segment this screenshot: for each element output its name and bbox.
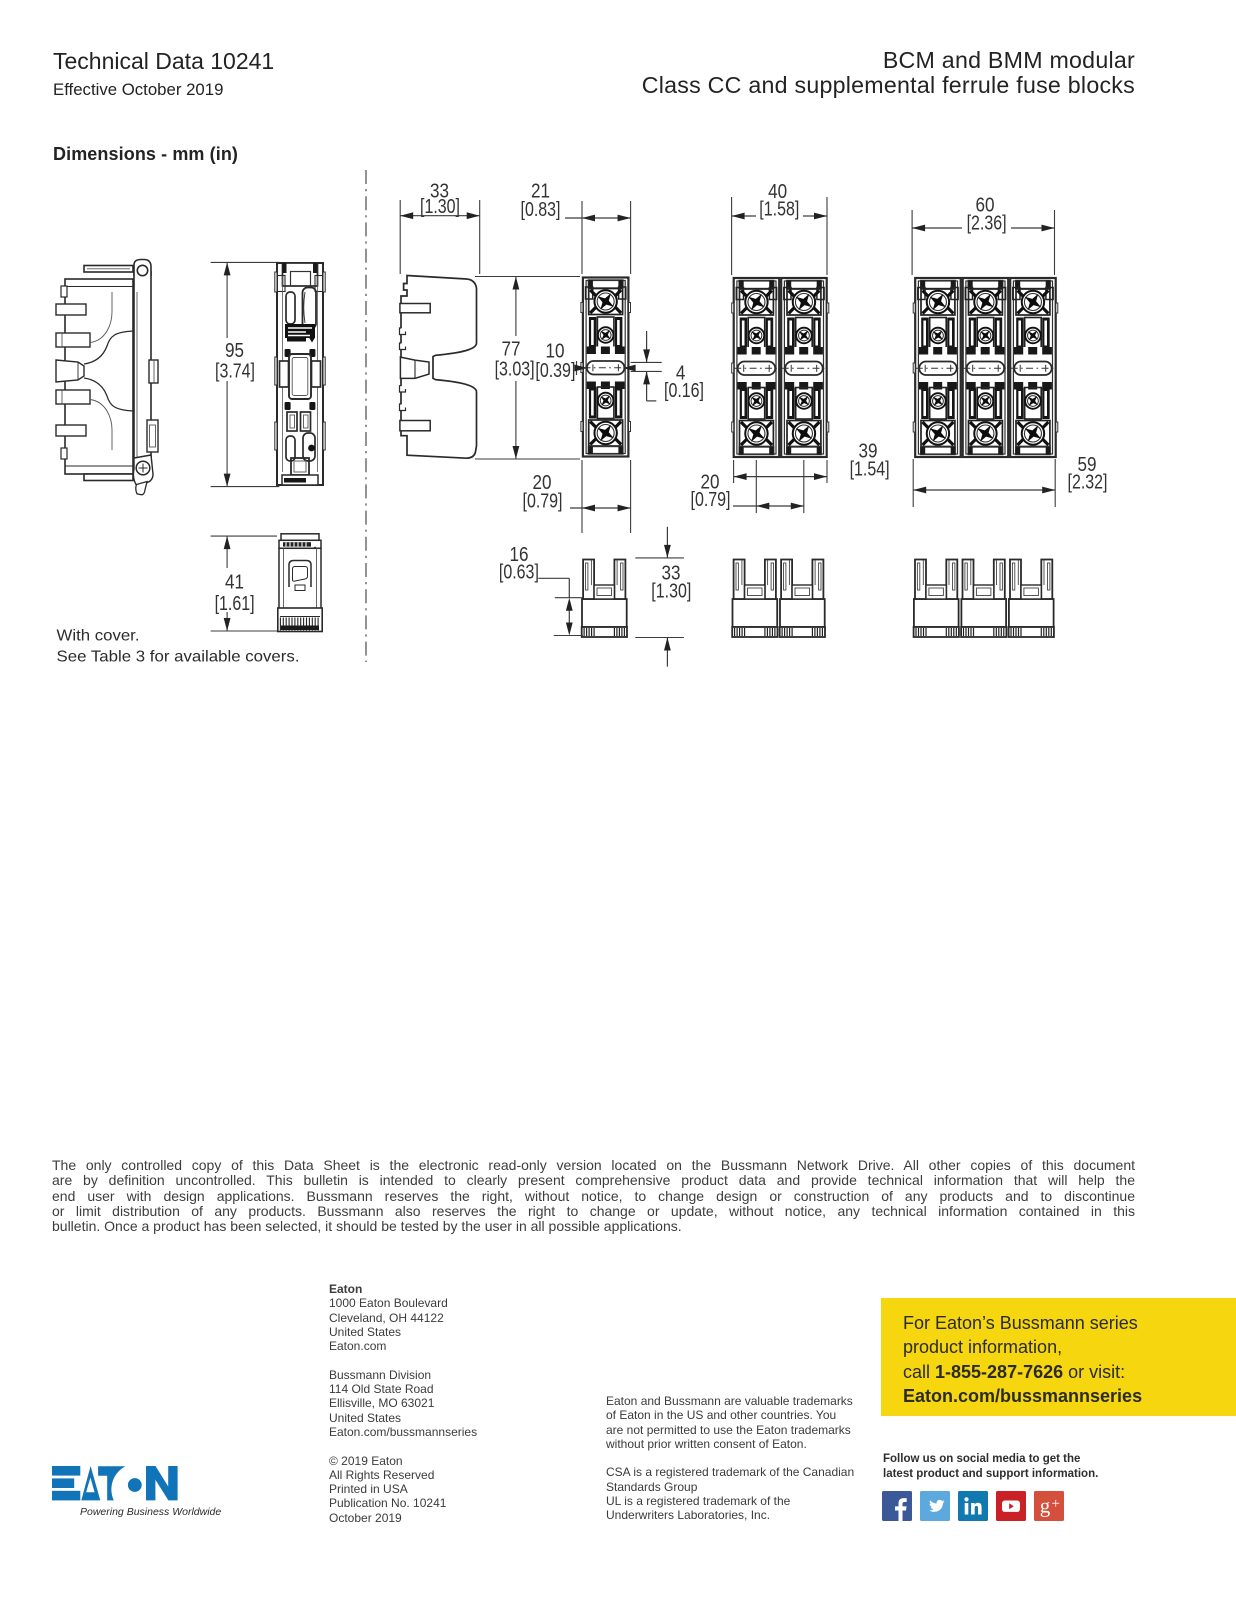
svg-text:[2.36]: [2.36] bbox=[967, 213, 1007, 235]
svg-text:[1.30]: [1.30] bbox=[420, 196, 460, 218]
svg-text:g: g bbox=[1040, 1494, 1051, 1518]
svg-text:[3.74]: [3.74] bbox=[215, 361, 255, 383]
svg-text:[1.54]: [1.54] bbox=[850, 459, 890, 481]
svg-text:[0.63]: [0.63] bbox=[499, 562, 539, 584]
svg-text:[1.30]: [1.30] bbox=[651, 581, 691, 603]
svg-text:95: 95 bbox=[225, 340, 244, 362]
svg-text:See Table 3 for available cove: See Table 3 for available covers. bbox=[57, 649, 300, 666]
svg-text:[2.32]: [2.32] bbox=[1068, 472, 1108, 494]
svg-text:With cover.: With cover. bbox=[57, 628, 140, 645]
svg-text:[1.58]: [1.58] bbox=[759, 199, 799, 221]
svg-text:41: 41 bbox=[225, 572, 244, 594]
svg-text:[3.03]: [3.03] bbox=[495, 359, 535, 381]
svg-text:[0.83]: [0.83] bbox=[521, 199, 561, 221]
svg-text:77: 77 bbox=[502, 339, 521, 361]
svg-text:[0.16]: [0.16] bbox=[664, 380, 704, 402]
svg-text:[0.79]: [0.79] bbox=[523, 491, 563, 513]
svg-text:[1.61]: [1.61] bbox=[215, 593, 255, 615]
svg-text:[0.39]: [0.39] bbox=[535, 360, 575, 382]
svg-text:+: + bbox=[1052, 1496, 1060, 1512]
svg-text:[0.79]: [0.79] bbox=[691, 489, 731, 511]
